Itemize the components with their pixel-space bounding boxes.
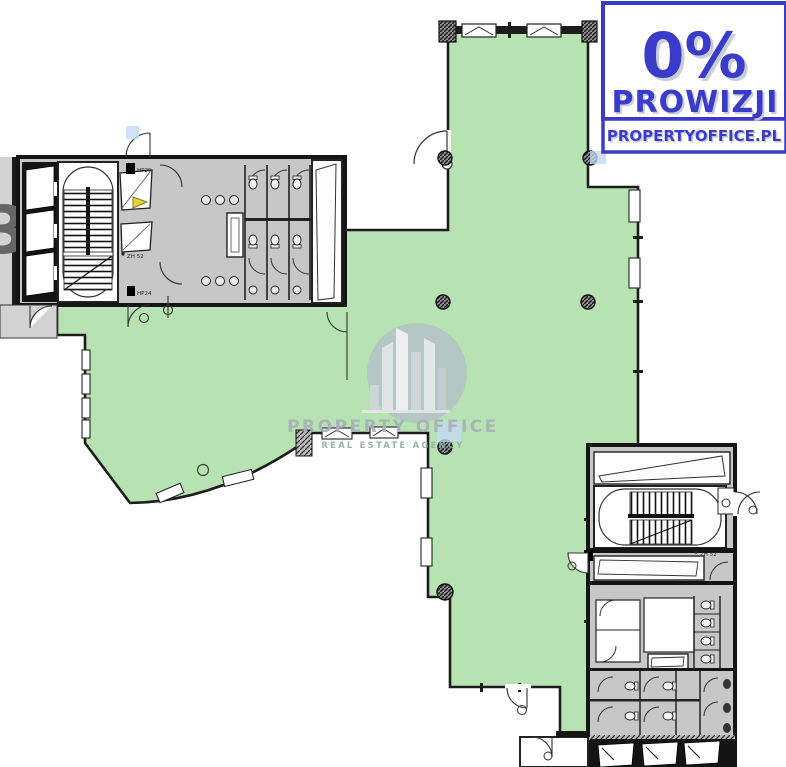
east-door <box>733 492 760 516</box>
available-area-shape <box>57 30 638 733</box>
badge-subheadline: PROWIZJI <box>612 85 779 120</box>
hydrant-label-mid: HP24 <box>137 291 152 297</box>
watermark-brand: PROPERTY OFFICE <box>287 417 499 437</box>
below-core-room <box>0 305 57 338</box>
fire-zone-label-top: ZH 52 <box>127 254 144 260</box>
right-strip-room <box>312 160 342 303</box>
bottom-annex <box>520 731 590 767</box>
stairwell-top <box>58 162 118 302</box>
elevator-row-bottom <box>588 735 735 767</box>
top-entrance: HP25 <box>126 133 152 174</box>
available-area <box>57 30 638 733</box>
green-side-door <box>568 553 588 573</box>
elevator-bank <box>22 162 59 302</box>
fire-zone-label-bottom: ZH 52 <box>700 552 717 558</box>
hydrant-label-top: HP25 <box>137 168 152 174</box>
watermark-tagline: REAL ESTATE AGENCY <box>321 441 464 451</box>
floor-plan-screenshot: 3 ZH <box>0 0 786 767</box>
zero-commission-badge: 0% 0% PROWIZJI PROWIZJI PROPERTYOFFICE.P… <box>603 3 786 152</box>
floor-plan-svg: 3 ZH <box>0 0 786 767</box>
top-room <box>594 452 730 484</box>
badge-website: PROPERTYOFFICE.PL <box>607 127 782 145</box>
badge-headline: 0% <box>641 19 746 92</box>
stairwell-bottom <box>594 486 734 548</box>
bottom-wall-door <box>505 684 531 715</box>
